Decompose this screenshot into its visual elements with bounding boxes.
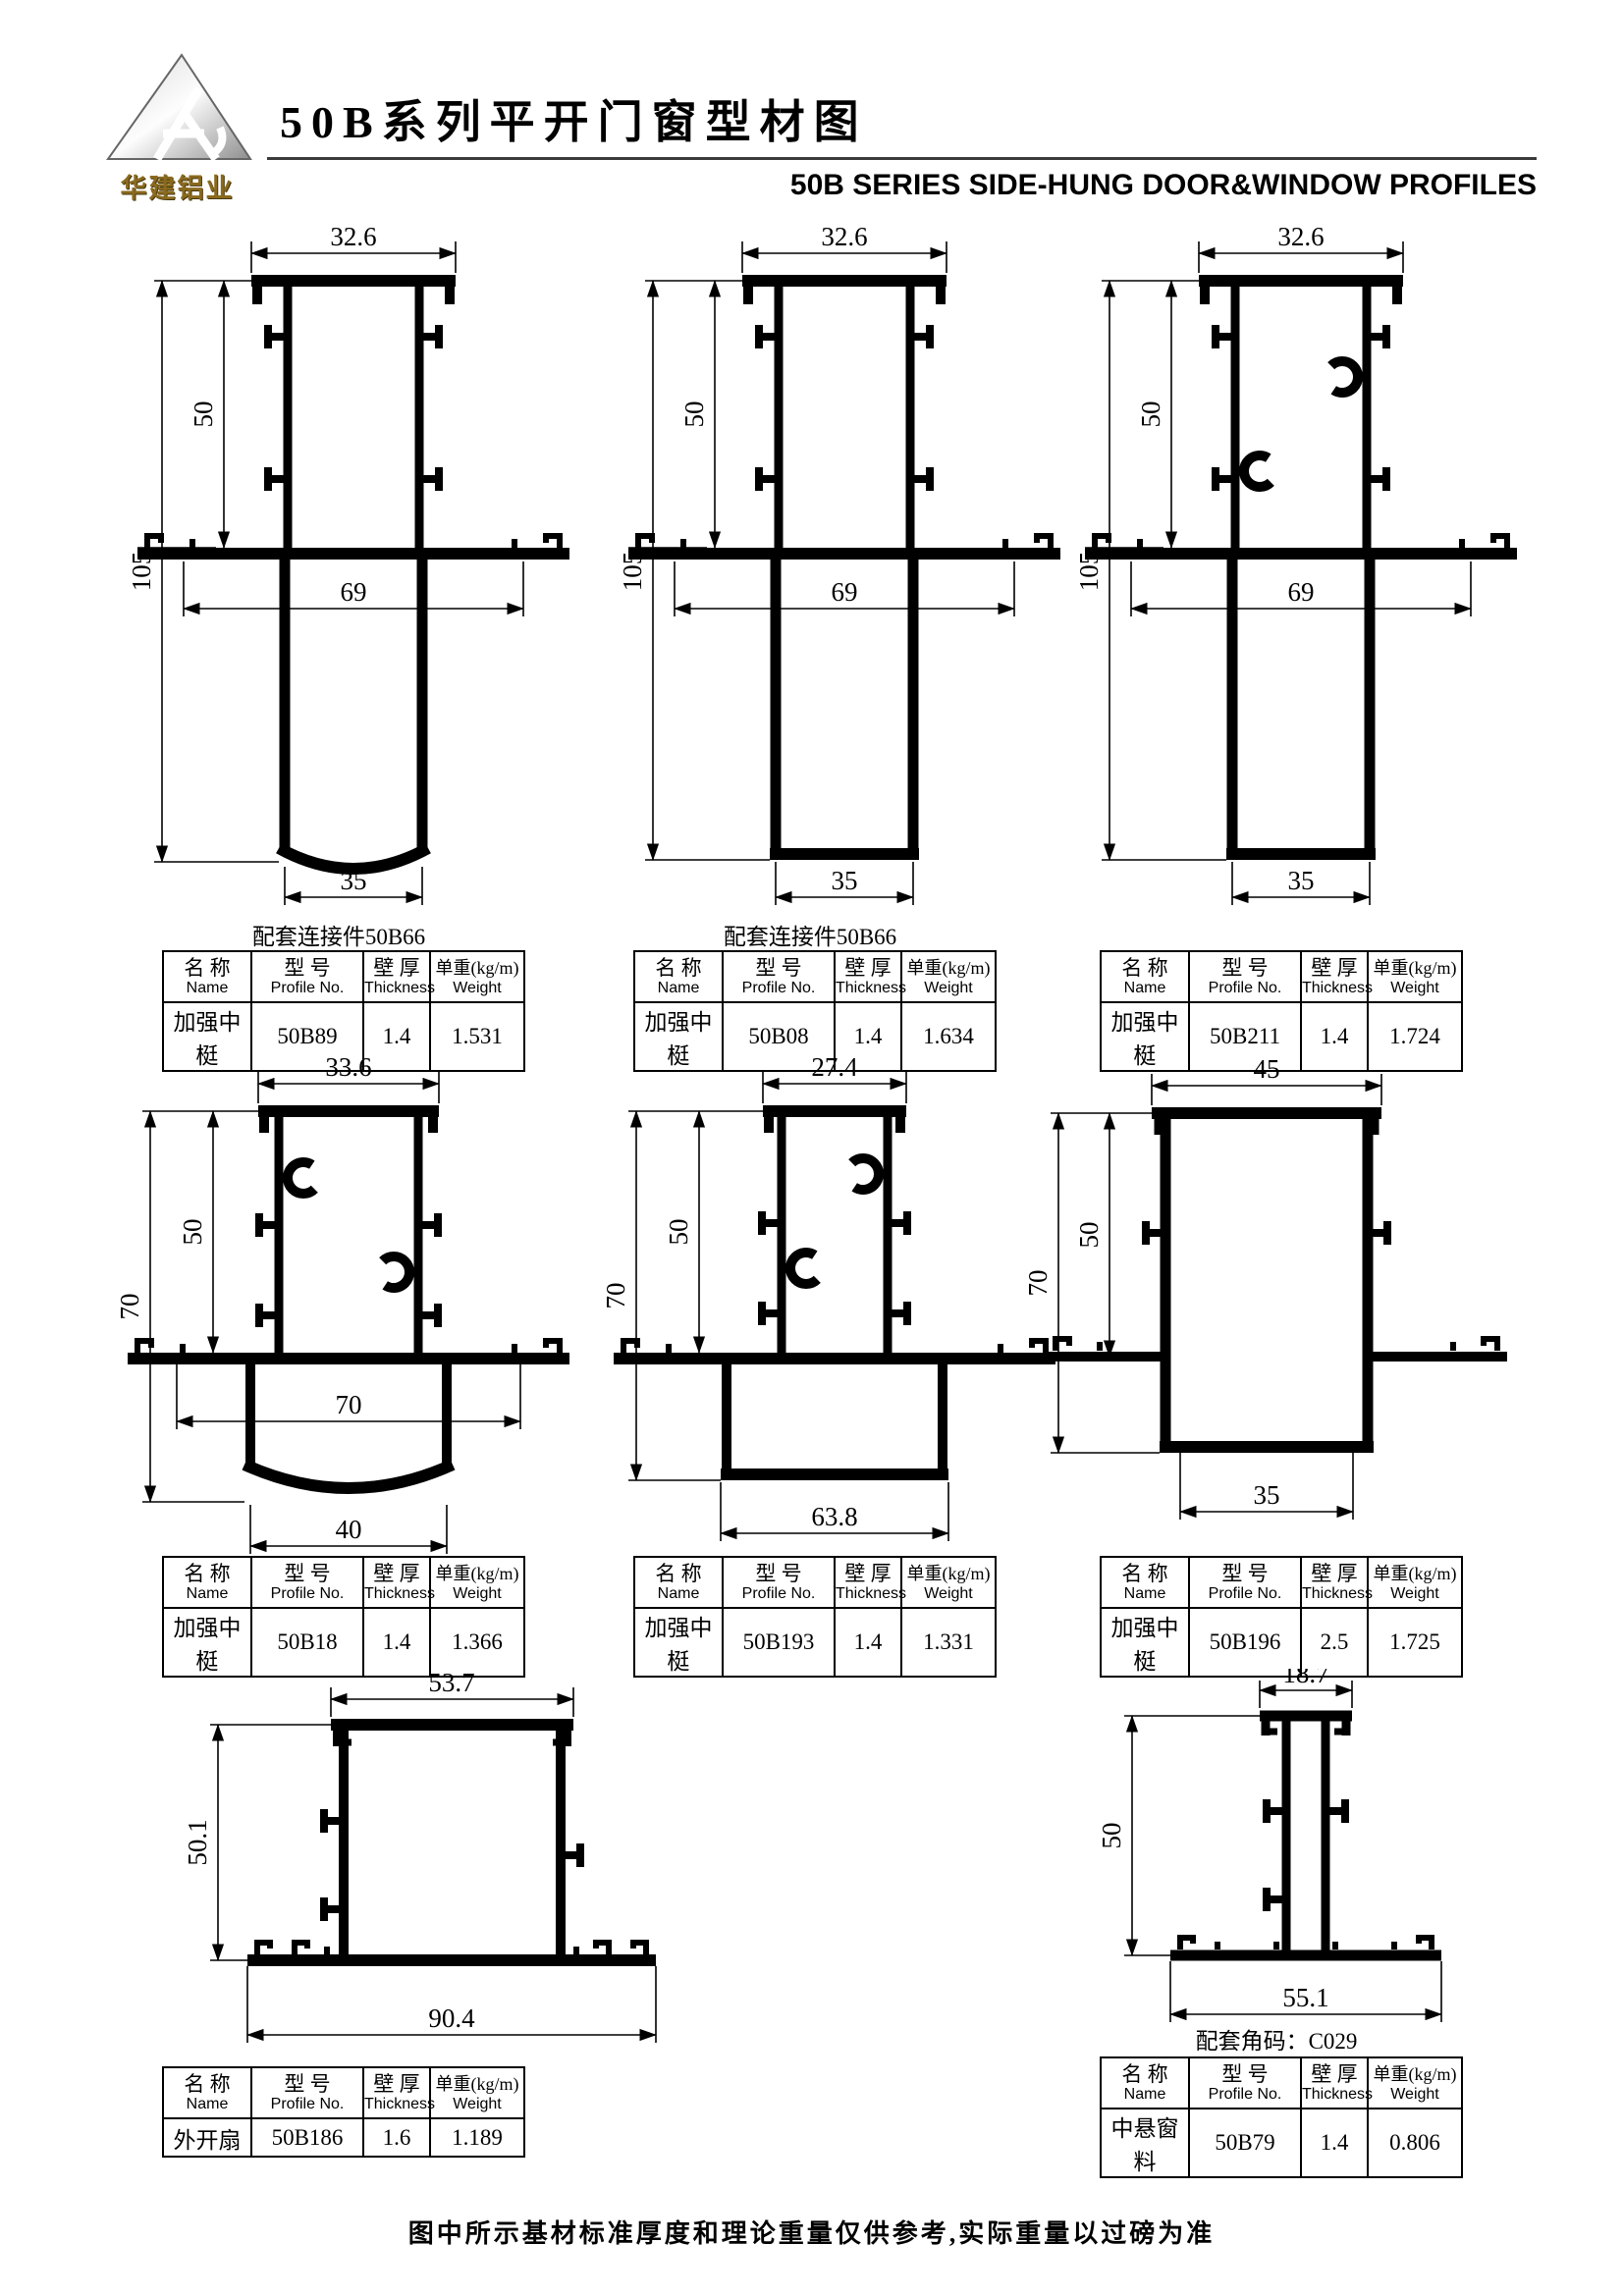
dim-bottom: 35 [1288, 866, 1315, 895]
profile-drawing-50B196: 45 50 70 35 [1021, 1058, 1532, 1559]
dim-h1: 50 [189, 401, 218, 428]
dim-bottom: 35 [1254, 1480, 1280, 1510]
dim-top: 32.6 [821, 224, 867, 251]
spec-table-50B186: 名 称Name 型 号Profile No. 壁 厚Thickness 单重(k… [162, 2066, 525, 2158]
dim-bottom: 90.4 [428, 2003, 475, 2033]
dim-h2: 105 [127, 552, 156, 592]
profile-drawing-50B79: 18.7 50 55.1 [1075, 1669, 1537, 2061]
profile-name: 加强中梃 [163, 1608, 251, 1677]
profile-drawing-50B193: 27.4 50 70 63.8 [589, 1058, 1080, 1559]
dim-h1: 50.1 [183, 1819, 212, 1865]
dim-bottom: 55.1 [1282, 1983, 1328, 2012]
profile-outline [247, 1725, 656, 1960]
profile-name: 中悬窗料 [1101, 2109, 1189, 2177]
dim-h1: 50 [1074, 1222, 1104, 1249]
profile-thickness: 1.4 [835, 1608, 901, 1677]
col-header-model: 型 号 [252, 956, 362, 980]
profile-thickness: 1.4 [363, 1608, 430, 1677]
dim-top: 18.7 [1282, 1669, 1328, 1688]
spec-table-50B08: 名 称Name 型 号Profile No. 壁 厚Thickness 单重(k… [633, 950, 997, 1072]
dim-bottom: 35 [832, 866, 858, 895]
spec-table-50B18: 名 称Name 型 号Profile No. 壁 厚Thickness 单重(k… [162, 1556, 525, 1678]
dim-h1: 50 [679, 401, 709, 428]
screw-boss [281, 1155, 325, 1200]
dim-h2: 105 [618, 552, 647, 592]
spec-table-50B89: 名 称Name 型 号Profile No. 壁 厚Thickness 单重(k… [162, 950, 525, 1072]
profile-drawing-50B186: 53.7 50.1 90.4 [147, 1674, 756, 2106]
dim-mid: 69 [341, 577, 367, 607]
dim-bottom: 63.8 [811, 1502, 857, 1531]
dim-h1: 50 [1097, 1823, 1126, 1849]
profile-outline [614, 1111, 1055, 1474]
profile-drawing-50B211: 32.6 50 105 69 35 [1055, 224, 1546, 916]
dim-mid: 69 [832, 577, 858, 607]
title-underline [267, 157, 1537, 160]
col-header-thickness: 壁 厚 [364, 956, 429, 980]
screw-boss [840, 1151, 885, 1196]
page-subtitle: 50B SERIES SIDE-HUNG DOOR&WINDOW PROFILE… [267, 169, 1537, 202]
profile-thickness: 2.5 [1301, 1608, 1368, 1677]
page-title: 50B系列平开门窗型材图 [280, 86, 868, 151]
dim-top: 33.6 [325, 1058, 371, 1082]
profile-name: 外开扇 [163, 2118, 251, 2157]
spec-table-50B196: 名 称Name 型 号Profile No. 壁 厚Thickness 单重(k… [1100, 1556, 1463, 1678]
spec-table-50B79: 名 称Name 型 号Profile No. 壁 厚Thickness 单重(k… [1100, 2056, 1463, 2178]
spec-table-50B211: 名 称Name 型 号Profile No. 壁 厚Thickness 单重(k… [1100, 950, 1463, 1072]
dim-h2: 70 [1023, 1270, 1053, 1297]
profile-outline [1046, 1113, 1507, 1447]
dim-h2: 105 [1074, 552, 1104, 592]
screw-boss [1237, 449, 1281, 493]
company-logo-icon [98, 49, 260, 165]
profile-thickness: 1.4 [1301, 2109, 1368, 2177]
profile-weight: 1.366 [430, 1608, 524, 1677]
dim-top: 32.6 [1277, 224, 1324, 251]
profile-outline [628, 281, 1060, 856]
profile-model: 50B186 [251, 2118, 363, 2157]
screw-boss [371, 1250, 415, 1294]
profile-name: 加强中梃 [1101, 1608, 1189, 1677]
dim-top: 45 [1254, 1058, 1280, 1084]
screw-boss [1320, 354, 1364, 399]
spec-table-50B193: 名 称Name 型 号Profile No. 壁 厚Thickness 单重(k… [633, 1556, 997, 1678]
profile-outline [1085, 281, 1517, 856]
profile-weight: 1.331 [901, 1608, 996, 1677]
drawing-caption: 配套连接件50B66 [162, 918, 515, 951]
dim-bottom: 35 [341, 866, 367, 895]
dim-mid: 69 [1288, 577, 1315, 607]
dimension-lines [210, 1687, 656, 2043]
dim-h2: 70 [115, 1294, 144, 1320]
profile-model: 50B18 [251, 1608, 363, 1677]
profile-model: 50B193 [723, 1608, 835, 1677]
dimension-lines [1085, 241, 1471, 905]
profile-drawing-50B89: 32.6 50 105 69 35 [108, 224, 599, 916]
screw-boss [784, 1246, 828, 1290]
dim-top: 27.4 [811, 1058, 858, 1082]
logo-text: 华建铝业 [86, 167, 268, 205]
dimension-lines [628, 241, 1014, 905]
dim-h2: 70 [601, 1283, 630, 1309]
catalog-page: 华建铝业 50B系列平开门窗型材图 50B SERIES SIDE-HUNG D… [0, 0, 1623, 2296]
dim-top: 32.6 [330, 224, 376, 251]
profile-name: 加强中梃 [634, 1608, 723, 1677]
footer-note: 图中所示基材标准厚度和理论重量仅供参考,实际重量以过磅为准 [0, 2214, 1623, 2250]
drawing-caption: 配套角码：C029 [1100, 2022, 1453, 2056]
dim-h1: 50 [664, 1219, 693, 1246]
profile-weight: 1.725 [1368, 1608, 1462, 1677]
dim-mid: 70 [336, 1390, 362, 1419]
drawing-caption: 配套连接件50B66 [633, 918, 987, 951]
profile-outline [137, 281, 569, 869]
dim-h1: 50 [1136, 401, 1165, 428]
profile-weight: 0.806 [1368, 2109, 1462, 2177]
dim-top: 53.7 [428, 1674, 474, 1697]
profile-outline [128, 1111, 569, 1488]
profile-thickness: 1.6 [363, 2118, 430, 2157]
dim-h1: 50 [178, 1219, 207, 1246]
dimension-lines [137, 241, 523, 905]
col-header-name: 名 称 [164, 956, 250, 980]
profile-model: 50B196 [1189, 1608, 1301, 1677]
profile-drawing-50B18: 33.6 50 70 70 40 [103, 1058, 594, 1559]
profile-model: 50B79 [1189, 2109, 1301, 2177]
col-header-weight: 单重(kg/m) [431, 956, 523, 980]
profile-outline [1170, 1716, 1441, 1955]
profile-drawing-50B08: 32.6 50 105 69 35 [599, 224, 1090, 916]
profile-weight: 1.189 [430, 2118, 524, 2157]
dim-bottom: 40 [336, 1515, 362, 1544]
